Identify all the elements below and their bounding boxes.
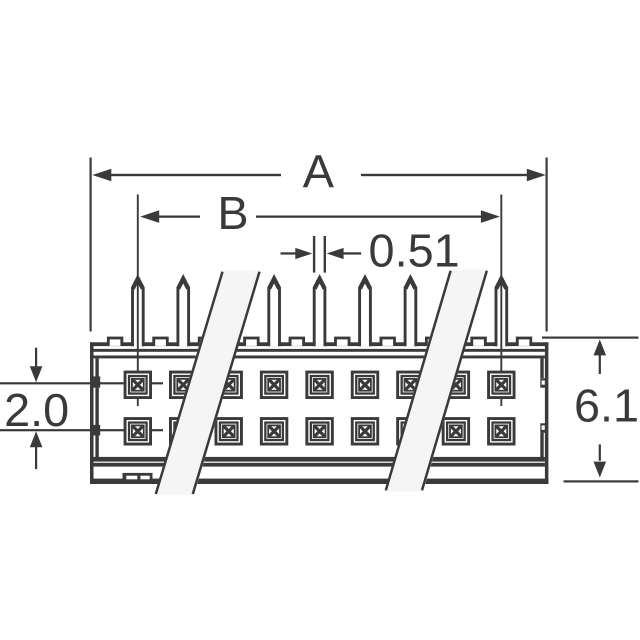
svg-text:6.1: 6.1 — [574, 380, 639, 432]
svg-text:2.0: 2.0 — [4, 384, 69, 436]
svg-text:0.51: 0.51 — [369, 225, 460, 277]
svg-text:A: A — [303, 146, 335, 198]
svg-text:B: B — [217, 187, 248, 239]
